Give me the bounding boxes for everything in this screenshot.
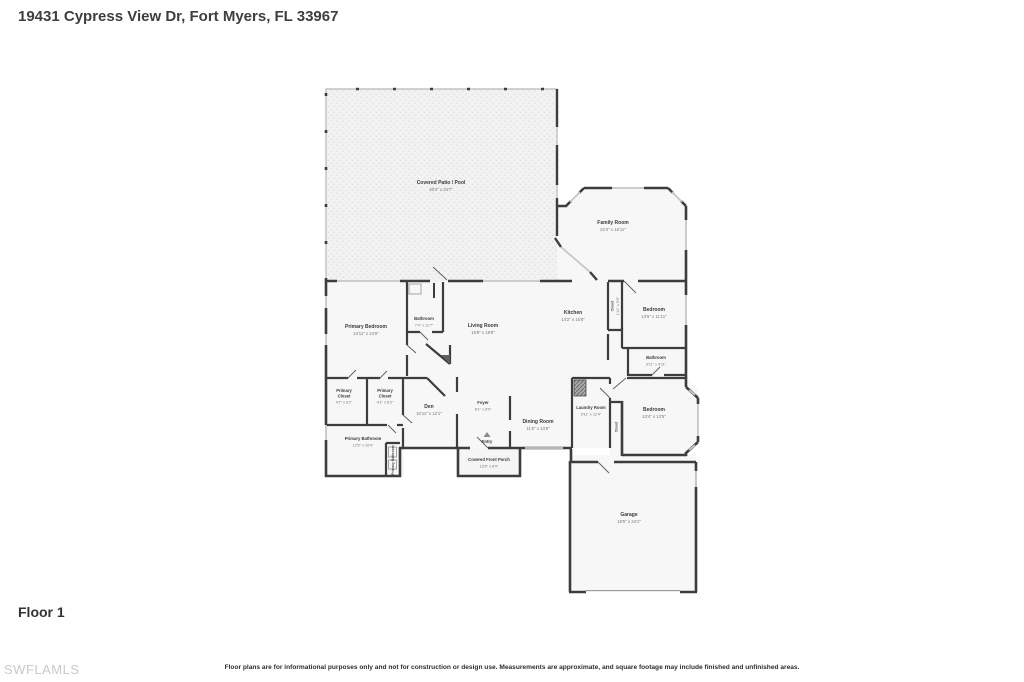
svg-text:Closet: Closet [615,421,619,432]
room-label-bathroom-top: Bathroom [414,316,434,321]
room-fills [326,89,698,592]
room-label-den: Den [424,404,433,410]
room-dims-laundry-room: 5'11" x 12'4" [581,413,602,417]
room-label-living-room: Living Room [468,323,499,329]
room-dims-bedroom-top: 13'6" x 11'11" [641,314,667,319]
svg-text:Closet: Closet [611,300,615,311]
floor-plan: Covered Patio / Pool 40'4" x 34'7" Famil… [0,0,1024,682]
room-label-primary-bathroom: Primary Bathroom [345,436,382,441]
room-label-water-closet: Primary Bathroom [391,445,395,475]
room-dims-primary-bathroom: 12'5" x 10'4" [353,444,374,448]
room-label-bathroom-right: Bathroom [646,355,666,360]
disclaimer-text: Floor plans are for informational purpos… [0,664,1024,671]
room-dims-front-porch: 13'6" x 8'9" [480,465,499,469]
room-label-bedroom-bottom: Bedroom [643,407,666,413]
room-dims-covered-patio: 40'4" x 34'7" [429,187,453,192]
room-dims-primary-closet-left: 4'7" x 6'2" [336,401,353,405]
room-label-garage: Garage [620,512,637,518]
room-dims-bathroom-right: 9'11" x 4'11" [646,363,667,367]
room-dims-kitchen: 14'2" x 15'8" [561,317,585,322]
room-dims-dining-room: 11'8" x 13'8" [526,426,550,431]
laundry-equipment [574,380,586,396]
room-label-kitchen: Kitchen [564,310,582,316]
room-label-covered-patio: Covered Patio / Pool [417,180,466,186]
room-dims-garage: 19'5" x 24'1" [617,519,641,524]
svg-text:Primary Bathroom: Primary Bathroom [391,445,395,475]
room-label-dining-room: Dining Room [522,419,554,425]
room-label-bedroom-top: Bedroom [643,307,666,313]
floor-label: Floor 1 [18,604,65,620]
room-dims-bathroom-top: 7'4" x 11'7" [415,324,434,328]
room-dims-primary-bedroom: 13'11" x 24'6" [353,331,379,336]
porch-floor [458,448,520,477]
room-label-closet-hall: Closet [615,421,619,432]
room-dims-bedroom-bottom: 13'4" x 13'5" [642,414,666,419]
family-room-floor [557,188,686,281]
room-label-primary-bedroom: Primary Bedroom [345,324,388,330]
room-label-primary-closet-right: PrimaryCloset [377,388,393,399]
room-label-family-room: Family Room [597,220,629,226]
room-dims-den: 10'11" x 12'1" [416,411,442,416]
room-dims-primary-closet-right: 4'1" x 6'2" [377,401,394,405]
svg-text:1'11" x 9'9": 1'11" x 9'9" [616,296,620,315]
room-label-entry: Entry [482,439,493,444]
room-label-primary-closet-left: PrimaryCloset [336,388,352,399]
room-dims-family-room: 22'4" x 16'11" [600,227,626,232]
room-dims-living-room: 15'8" x 18'8" [471,330,495,335]
room-label-laundry-room: Laundry Room [576,405,606,410]
room-label-foyer: Foyer [477,400,489,405]
room-dims-foyer: 8'1" x 8'0" [475,408,492,412]
room-label-front-porch: Covered Front Porch [468,457,510,462]
